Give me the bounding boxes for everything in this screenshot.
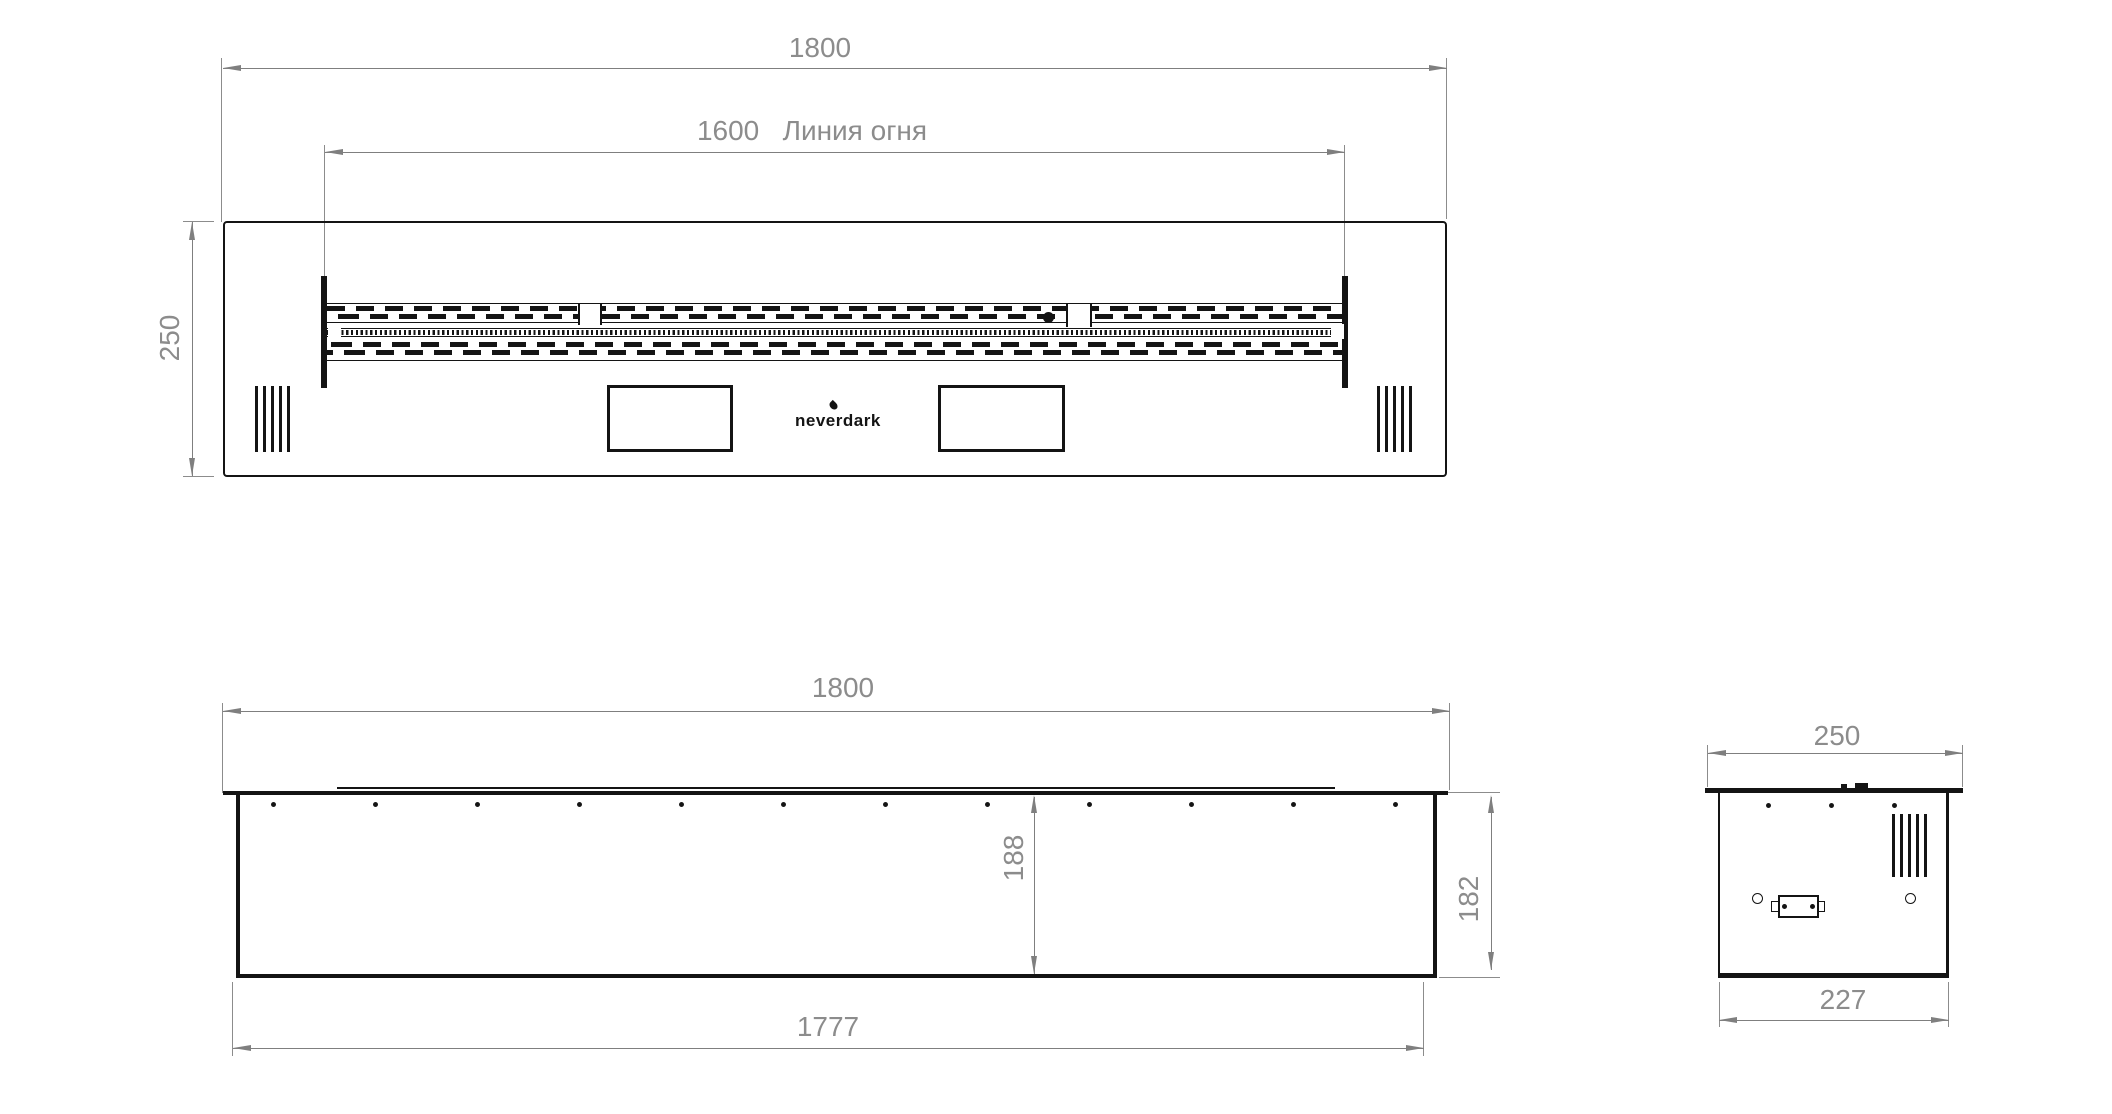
dimension-line-1777 bbox=[233, 1048, 1424, 1049]
burner-end-cap bbox=[1331, 324, 1344, 339]
top-view-depth-label: 250 bbox=[156, 315, 184, 362]
arrowhead-icon bbox=[233, 1045, 251, 1051]
arrowhead-icon bbox=[189, 458, 195, 476]
arrowhead-icon bbox=[189, 222, 195, 240]
arrowhead-icon bbox=[1031, 956, 1037, 974]
extension-line bbox=[222, 703, 223, 793]
burner-assembly bbox=[327, 303, 1345, 361]
screw-row-icon bbox=[1764, 801, 1904, 810]
top-view-width-label: 1800 bbox=[750, 34, 890, 62]
extension-line bbox=[183, 476, 214, 477]
burner-dashed-row bbox=[327, 314, 1345, 319]
extension-line bbox=[1448, 792, 1500, 793]
dimension-line-fire-line bbox=[325, 152, 1345, 153]
front-inner-height-label: 188 bbox=[1000, 835, 1028, 882]
front-view-width-label: 1800 bbox=[773, 674, 913, 702]
arrowhead-icon bbox=[1945, 750, 1963, 756]
mount-hole-icon bbox=[1905, 893, 1916, 904]
burner-edge-line bbox=[327, 336, 1345, 337]
side-top-width-label: 250 bbox=[1779, 722, 1895, 750]
arrowhead-icon bbox=[223, 65, 241, 71]
burner-end-cap bbox=[328, 324, 341, 339]
connector-screw-icon bbox=[1810, 904, 1815, 909]
arrowhead-icon bbox=[1406, 1045, 1424, 1051]
burner-dashed-row bbox=[327, 342, 1345, 347]
connector-screw-icon bbox=[1782, 904, 1787, 909]
fire-line-label: 1600 Линия огня bbox=[642, 117, 982, 145]
dimension-line-250-top bbox=[192, 222, 193, 476]
extension-line bbox=[183, 221, 214, 222]
burner-dotted-row bbox=[327, 330, 1345, 335]
dimension-line-188 bbox=[1034, 797, 1035, 974]
arrowhead-icon bbox=[1327, 149, 1345, 155]
extension-line bbox=[1439, 977, 1500, 978]
side-bottom-width-label: 227 bbox=[1785, 986, 1901, 1014]
burner-dashed-row bbox=[327, 306, 1345, 311]
front-body bbox=[236, 795, 1437, 978]
burner-edge-line bbox=[327, 360, 1345, 361]
mount-hole-icon bbox=[1752, 893, 1763, 904]
burner-slider-plate bbox=[1066, 304, 1092, 327]
cutout-left bbox=[607, 385, 733, 452]
drawing-canvas: 1800 1600 Линия огня 250 bbox=[0, 0, 2112, 1114]
front-height-label: 182 bbox=[1455, 876, 1483, 923]
burner-edge-line bbox=[327, 328, 1345, 329]
arrowhead-icon bbox=[1931, 1017, 1949, 1023]
dimension-line-1800-front bbox=[223, 711, 1450, 712]
arrowhead-icon bbox=[1432, 708, 1450, 714]
burner-dashed-row bbox=[327, 350, 1345, 355]
front-top-lip bbox=[337, 787, 1335, 789]
arrowhead-icon bbox=[1429, 65, 1447, 71]
vent-slots-left-icon bbox=[255, 386, 291, 452]
cutout-right bbox=[938, 385, 1065, 452]
arrowhead-icon bbox=[1488, 952, 1494, 970]
burner-knob bbox=[1043, 312, 1054, 323]
brand-logo: neverdark bbox=[795, 412, 885, 430]
arrowhead-icon bbox=[1719, 1017, 1737, 1023]
arrowhead-icon bbox=[223, 708, 241, 714]
front-bottom-width-label: 1777 bbox=[758, 1013, 898, 1041]
burner-edge-line bbox=[327, 303, 1345, 304]
extension-line bbox=[1449, 703, 1450, 790]
dimension-line-227 bbox=[1719, 1020, 1949, 1021]
screw-row-icon bbox=[269, 800, 1401, 809]
vent-slots-right-icon bbox=[1377, 386, 1413, 452]
extension-line bbox=[1446, 58, 1447, 219]
arrowhead-icon bbox=[325, 149, 343, 155]
arrowhead-icon bbox=[1031, 795, 1037, 813]
arrowhead-icon bbox=[1708, 750, 1726, 756]
arrowhead-icon bbox=[1488, 795, 1494, 813]
dimension-line-250-side bbox=[1708, 753, 1963, 754]
burner-edge-line bbox=[327, 322, 1345, 323]
extension-line bbox=[221, 58, 222, 222]
dimension-line-182 bbox=[1491, 797, 1492, 970]
dimension-line-1800-top bbox=[223, 68, 1447, 69]
burner-slider-plate bbox=[578, 304, 602, 325]
vent-slots-side-icon bbox=[1892, 814, 1930, 877]
